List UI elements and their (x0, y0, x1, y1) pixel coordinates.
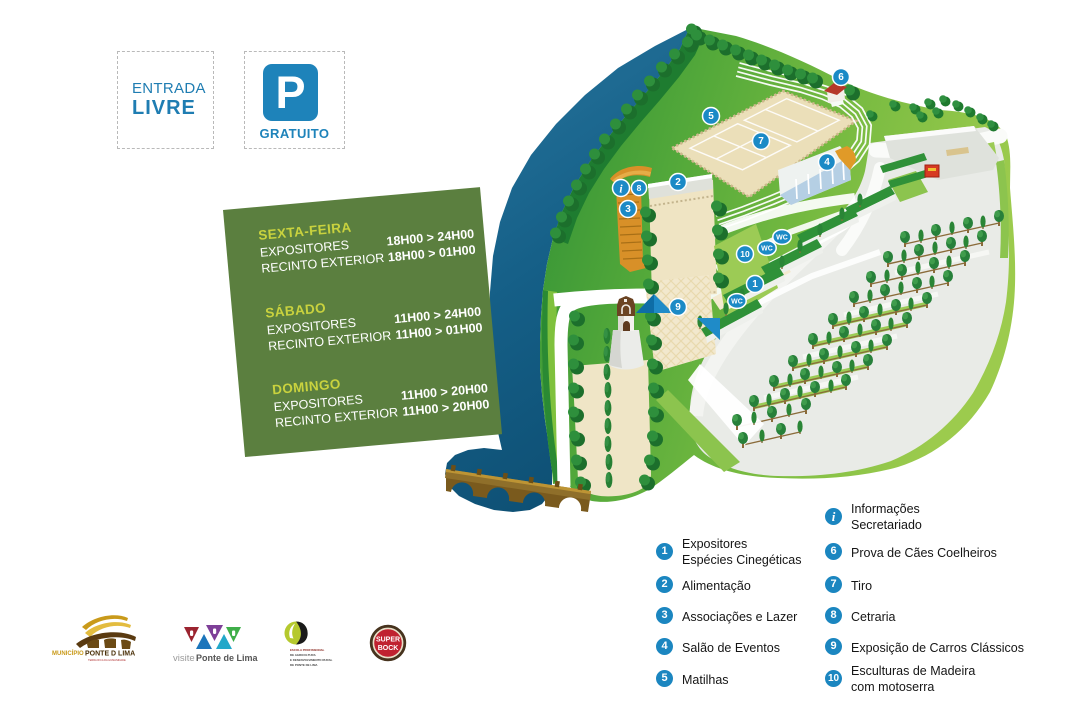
svg-text:SUPER: SUPER (376, 637, 400, 644)
svg-text:BOCK: BOCK (378, 645, 399, 652)
svg-text:TERRA RICA DA HUMANIDADE: TERRA RICA DA HUMANIDADE (88, 658, 126, 662)
svg-text:ESCOLA PROFISSIONAL: ESCOLA PROFISSIONAL (290, 648, 325, 652)
svg-text:E DESENVOLVIMENTO RURAL: E DESENVOLVIMENTO RURAL (290, 658, 333, 662)
svg-text:MUNICÍPIO: MUNICÍPIO (52, 649, 84, 657)
svg-text:visite: visite (173, 653, 195, 664)
svg-text:PONTE D LIMA: PONTE D LIMA (85, 651, 135, 658)
svg-text:DE PONTE DE LIMA: DE PONTE DE LIMA (290, 663, 318, 667)
svg-text:Ponte de Lima: Ponte de Lima (196, 653, 259, 663)
svg-text:DE AGRICULTURA: DE AGRICULTURA (290, 653, 317, 657)
